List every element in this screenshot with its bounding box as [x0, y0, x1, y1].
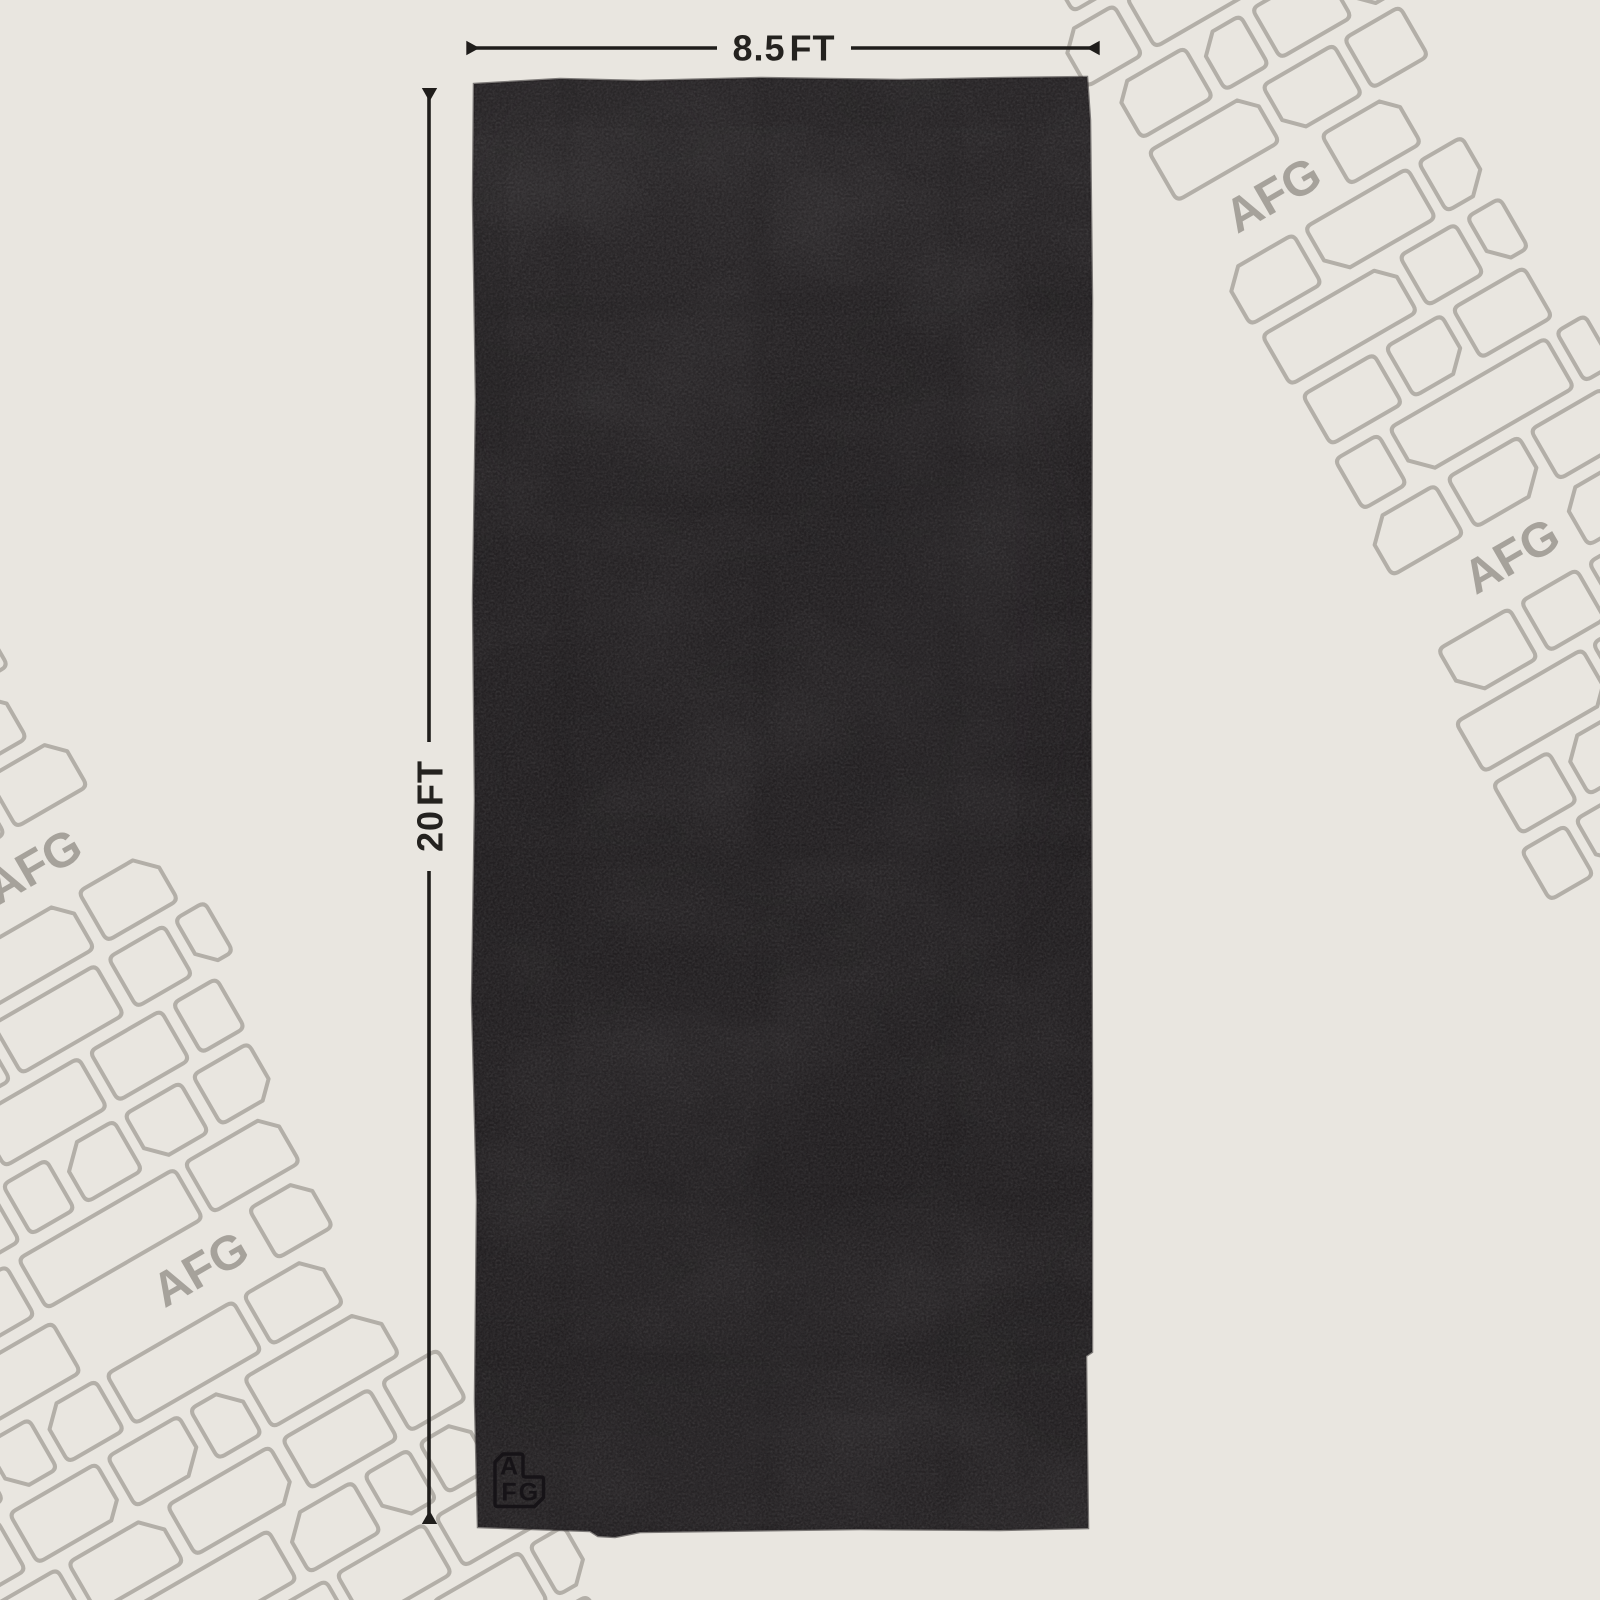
- svg-text:A: A: [500, 1453, 518, 1481]
- svg-text:20 FT: 20 FT: [410, 760, 451, 852]
- svg-text:G: G: [519, 1479, 538, 1507]
- svg-text:F: F: [501, 1479, 516, 1507]
- svg-text:8.5 FT: 8.5 FT: [732, 28, 835, 69]
